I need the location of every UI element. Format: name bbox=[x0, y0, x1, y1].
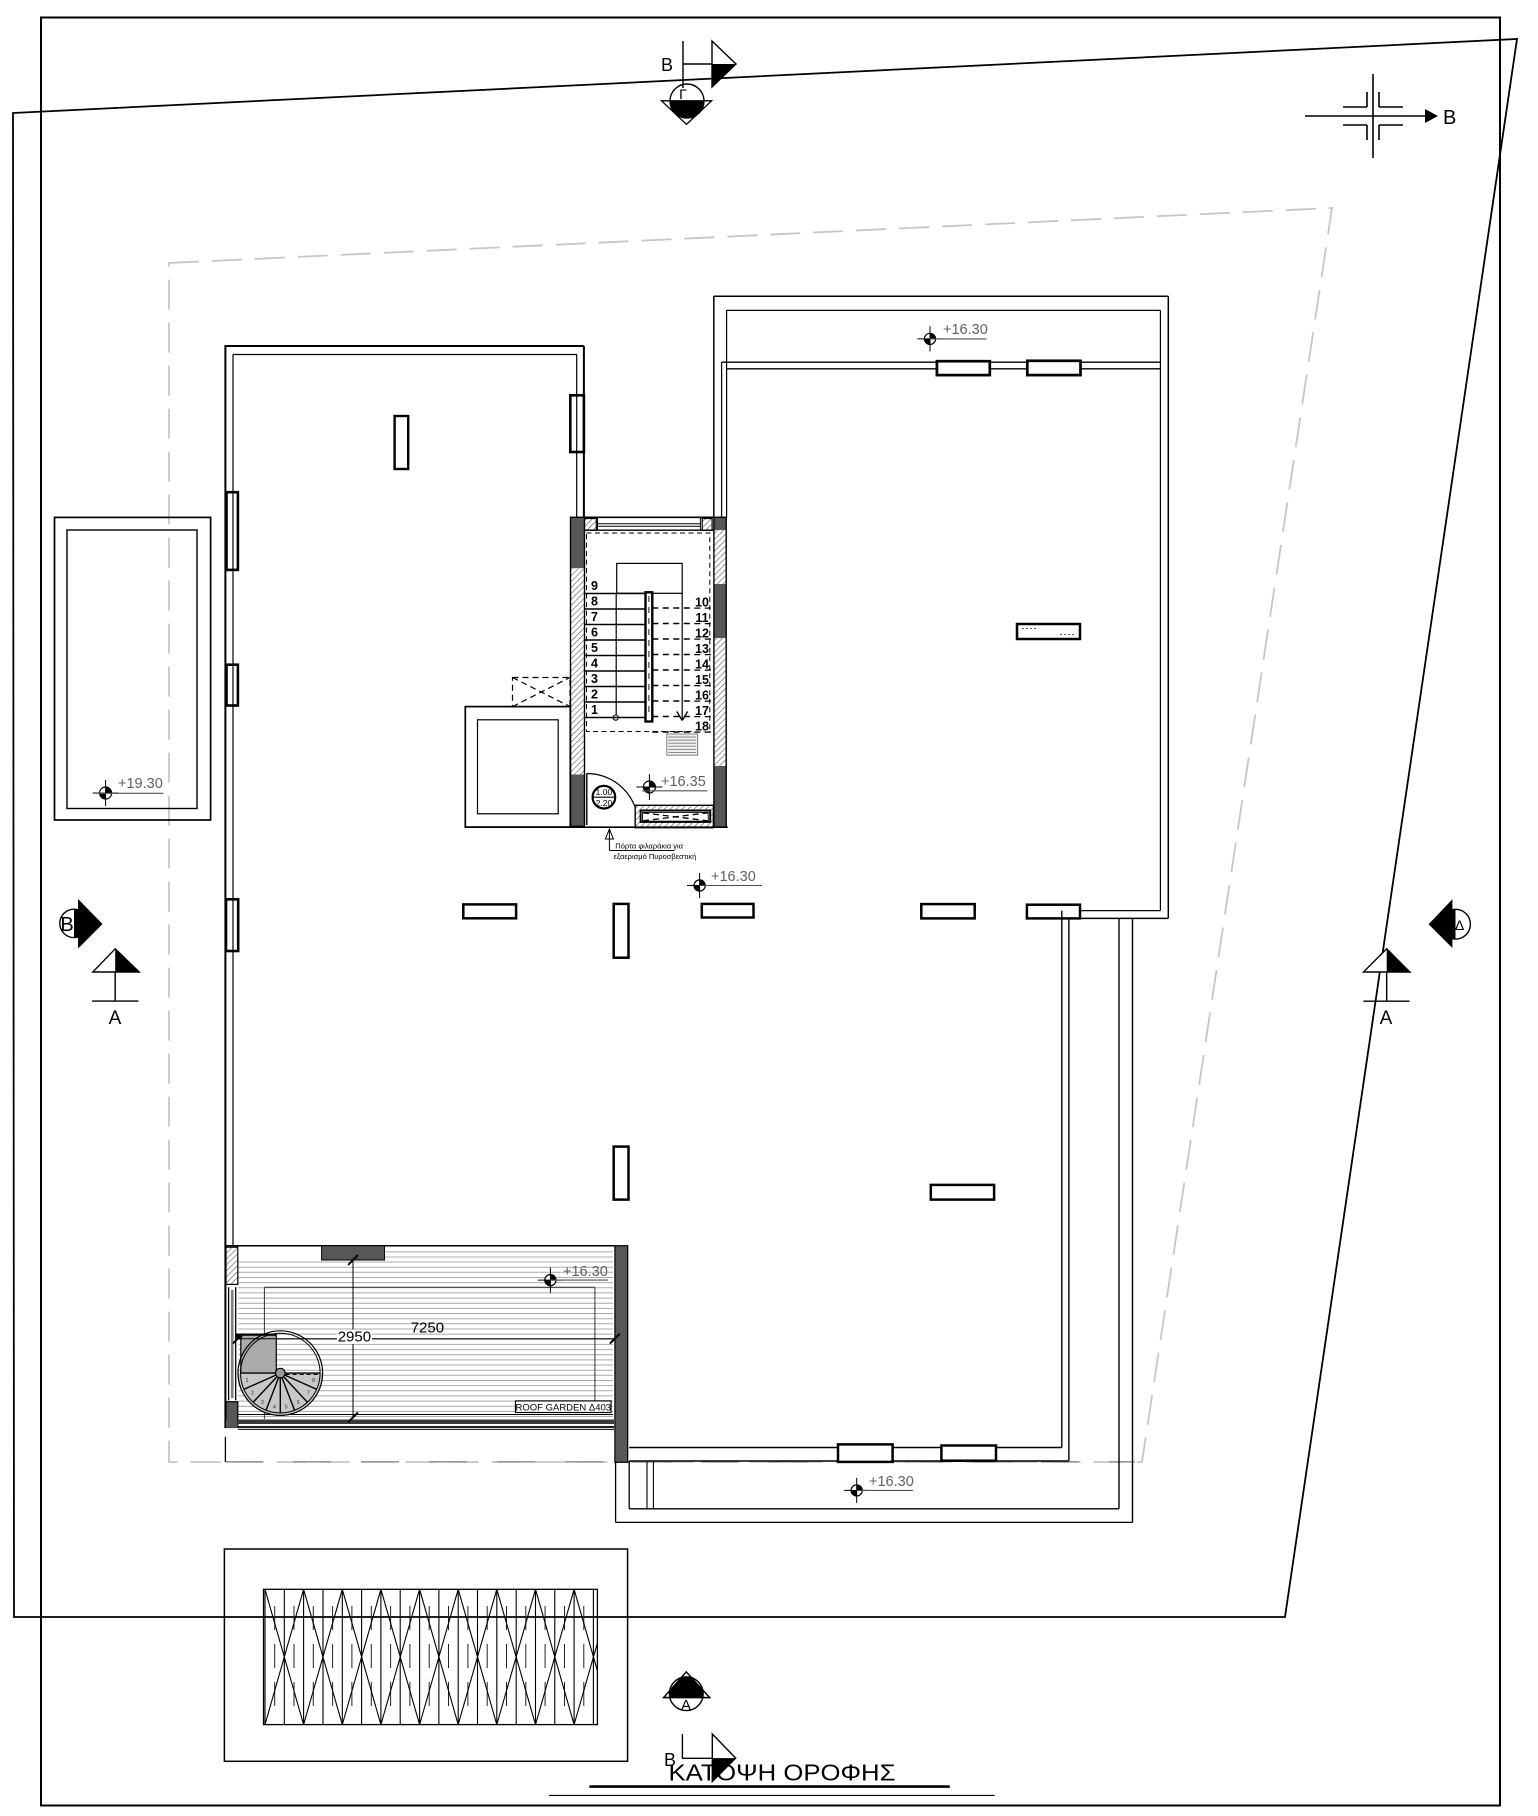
svg-text:16: 16 bbox=[695, 689, 709, 703]
svg-text:1.00: 1.00 bbox=[596, 787, 613, 797]
svg-text:5: 5 bbox=[591, 641, 598, 655]
svg-text:6: 6 bbox=[591, 626, 598, 640]
svg-text:B: B bbox=[60, 914, 73, 936]
svg-text:14: 14 bbox=[695, 658, 709, 672]
svg-text:ROOF GARDEN Δ403: ROOF GARDEN Δ403 bbox=[516, 1402, 612, 1413]
svg-text:15: 15 bbox=[695, 673, 709, 687]
svg-text:A: A bbox=[1380, 1008, 1393, 1029]
svg-text:1: 1 bbox=[591, 703, 598, 717]
svg-text:6: 6 bbox=[297, 1400, 300, 1406]
svg-text:11: 11 bbox=[695, 611, 708, 625]
svg-text:Γ: Γ bbox=[679, 86, 687, 102]
svg-text:+16.30: +16.30 bbox=[711, 869, 756, 885]
svg-text:12: 12 bbox=[695, 627, 709, 641]
svg-text:1: 1 bbox=[245, 1378, 248, 1384]
svg-text:4: 4 bbox=[591, 657, 598, 671]
svg-text:2: 2 bbox=[251, 1391, 254, 1397]
svg-text:8: 8 bbox=[312, 1378, 315, 1384]
svg-text:2.20: 2.20 bbox=[596, 798, 613, 808]
svg-text:B: B bbox=[661, 55, 673, 75]
svg-text:7: 7 bbox=[591, 610, 598, 624]
svg-text:5: 5 bbox=[285, 1405, 288, 1411]
svg-text:4: 4 bbox=[273, 1405, 276, 1411]
svg-text:+19.30: +19.30 bbox=[118, 776, 163, 792]
svg-text:13: 13 bbox=[695, 642, 709, 656]
svg-text:+16.30: +16.30 bbox=[943, 322, 988, 338]
svg-text:8: 8 bbox=[591, 595, 598, 609]
svg-text:7250: 7250 bbox=[411, 1320, 444, 1337]
svg-text:3: 3 bbox=[591, 672, 598, 686]
svg-text:17: 17 bbox=[695, 704, 709, 718]
svg-text:ΚΑΤΟΨΗ ΟΡΟΦΗΣ: ΚΑΤΟΨΗ ΟΡΟΦΗΣ bbox=[669, 1760, 896, 1786]
svg-text:9: 9 bbox=[591, 579, 598, 593]
svg-text:2: 2 bbox=[591, 688, 598, 702]
svg-text:B: B bbox=[1443, 107, 1456, 129]
svg-text:+16.30: +16.30 bbox=[563, 1264, 608, 1280]
svg-text:7: 7 bbox=[307, 1391, 310, 1397]
svg-text:εξαερισμό Πυροσβεστική: εξαερισμό Πυροσβεστική bbox=[614, 852, 697, 861]
svg-text:10: 10 bbox=[695, 596, 709, 610]
svg-text:18: 18 bbox=[695, 720, 709, 734]
svg-text:3: 3 bbox=[261, 1400, 264, 1406]
svg-text:+16.35: +16.35 bbox=[661, 774, 706, 790]
svg-text:2950: 2950 bbox=[338, 1329, 371, 1346]
svg-text:+16.30: +16.30 bbox=[869, 1474, 914, 1490]
svg-text:Δ: Δ bbox=[1455, 917, 1464, 933]
svg-text:Πόρτα φιλαράκια για: Πόρτα φιλαράκια για bbox=[615, 841, 683, 850]
svg-text:A: A bbox=[681, 1697, 691, 1714]
svg-text:A: A bbox=[109, 1008, 122, 1029]
